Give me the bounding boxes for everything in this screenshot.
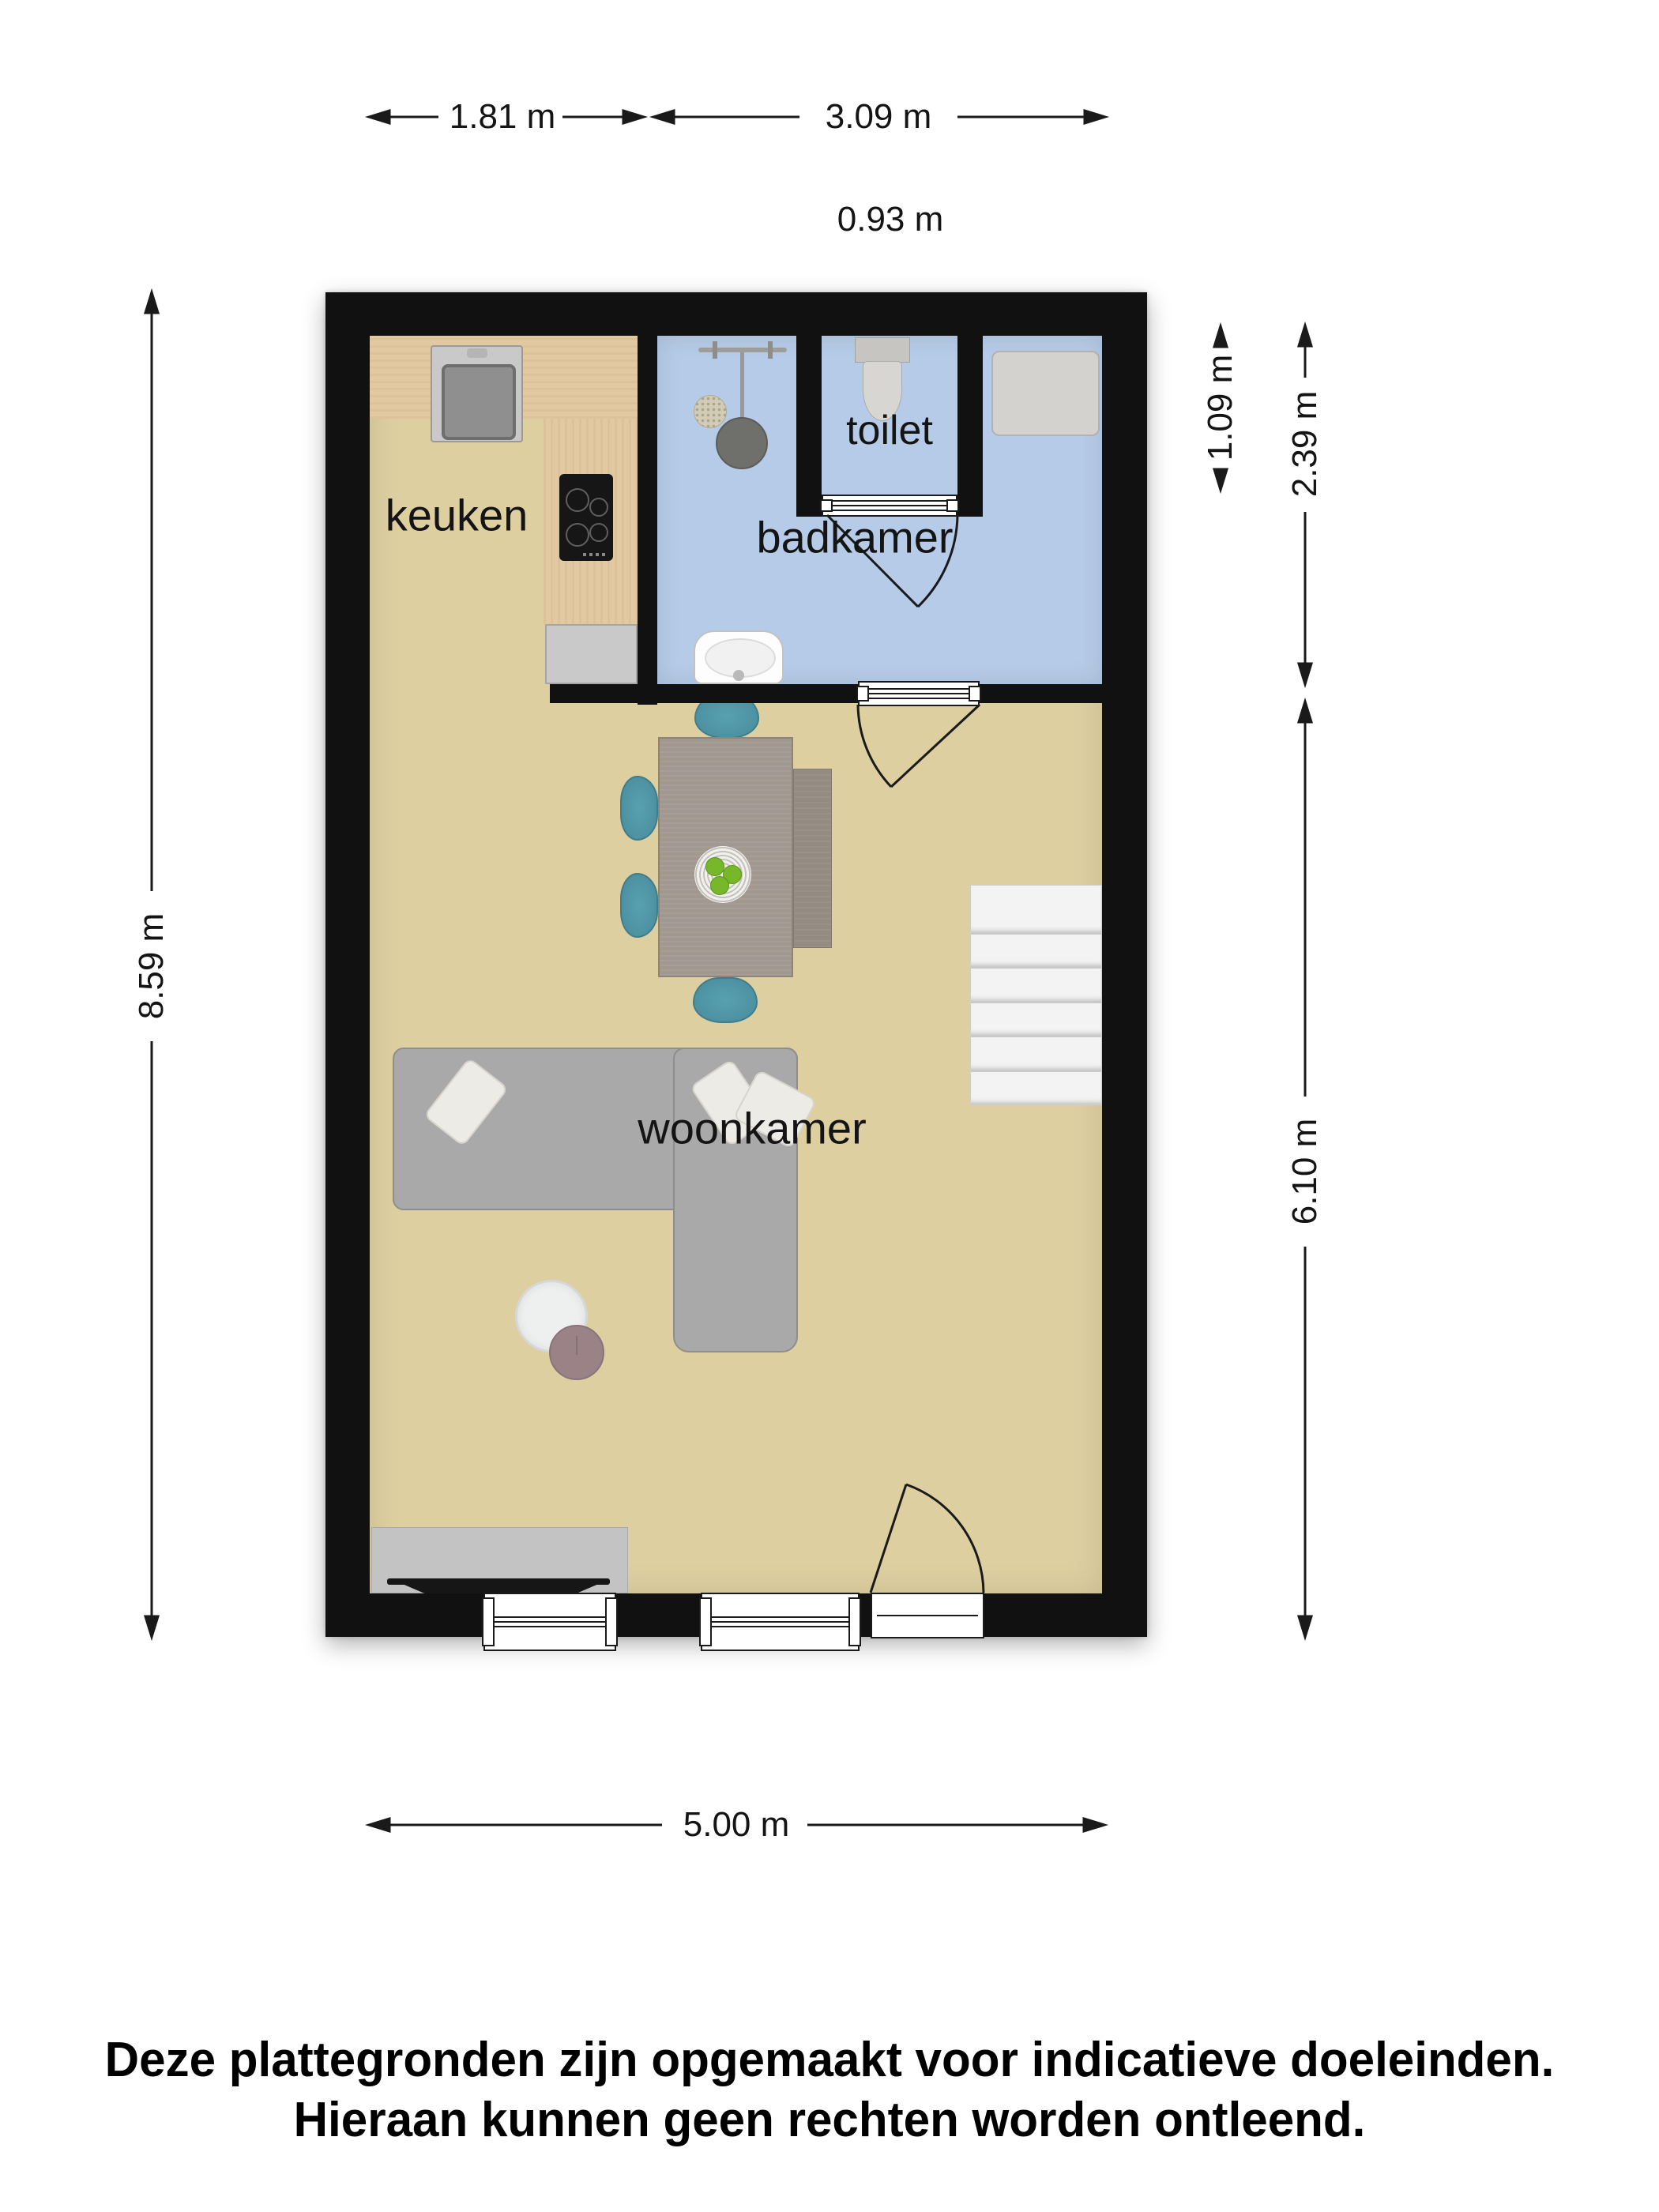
staircase (970, 885, 1102, 1105)
dim-kitchen-width: 1.81 m (450, 97, 556, 137)
stair-tread (971, 1037, 1101, 1071)
disclaimer: Deze plattegronden zijn opgemaakt voor i… (0, 2030, 1659, 2150)
bathroom-door-threshold (858, 681, 980, 706)
dining-chair-left-1 (620, 776, 658, 841)
room-label-kitchen: keuken (386, 490, 529, 541)
dining-chair-bottom (693, 977, 758, 1023)
dim-toilet-depth: 1.09 m (1201, 355, 1240, 461)
dim-bathroom-depth: 2.39 m (1285, 391, 1325, 498)
arrow-left-icon (369, 111, 389, 123)
stair-tread (971, 886, 1101, 935)
wall-toilet-right (957, 336, 983, 517)
door-jamb (856, 686, 869, 702)
window-jamb (605, 1597, 618, 1646)
stair-tread (971, 1003, 1101, 1037)
burner (566, 488, 589, 512)
dining-bench (793, 769, 832, 948)
disclaimer-line-2: Hieraan kunnen geen rechten worden ontle… (25, 2090, 1635, 2150)
sink-basin (442, 364, 516, 440)
dim-total-depth: 8.59 m (132, 913, 171, 1020)
arrow-down-icon (1299, 1616, 1311, 1637)
dim-total-width: 5.00 m (683, 1805, 790, 1845)
door-jamb (820, 499, 833, 512)
threshold-line (864, 693, 973, 694)
cooktop (559, 474, 613, 561)
apple (705, 857, 724, 876)
arrow-left-icon (653, 111, 674, 123)
side-table-round (549, 1325, 604, 1380)
burner (589, 498, 608, 517)
threshold-line (828, 505, 951, 506)
arrow-down-icon (1214, 469, 1227, 490)
sink-tap (733, 670, 744, 681)
wall-kitchen-bathroom (638, 336, 657, 705)
stair-tread (971, 969, 1101, 1003)
dim-living-depth: 6.10 m (1285, 1119, 1325, 1225)
arrow-up-icon (1214, 326, 1227, 347)
dim-bathroom-width: 3.09 m (826, 97, 932, 137)
arrow-up-icon (1299, 325, 1311, 346)
window-glazing-line (490, 1621, 610, 1623)
shower-valve (768, 341, 773, 359)
washing-machine (991, 351, 1100, 436)
dining-chair-left-2 (620, 873, 658, 938)
window-jamb (482, 1597, 495, 1646)
floorplan-page: keuken badkamer toilet woonkamer 1.81 m … (0, 0, 1659, 2212)
fruit-bowl (694, 846, 751, 903)
arrow-left-icon (369, 1819, 389, 1831)
window-glazing-line (707, 1621, 853, 1623)
dining-table (658, 737, 793, 977)
burner (589, 523, 608, 542)
sink-faucet (467, 348, 487, 358)
window-jamb (699, 1597, 712, 1646)
arrow-up-icon (145, 292, 158, 313)
apple (710, 876, 729, 895)
cooktop-controls (583, 553, 607, 556)
kitchen-appliance (545, 624, 638, 684)
shower-valve (713, 341, 717, 359)
bathroom-sink (694, 630, 784, 684)
arrow-down-icon (145, 1616, 158, 1637)
arrow-right-icon (1085, 111, 1105, 123)
dim-toilet-width: 0.93 m (837, 200, 944, 239)
arrow-right-icon (1084, 1819, 1104, 1831)
window-left (483, 1593, 616, 1651)
wall-bathroom-living-left (550, 684, 858, 703)
window-center (701, 1593, 860, 1651)
window-jamb (848, 1597, 861, 1646)
door-jamb (969, 686, 981, 702)
room-label-living: woonkamer (638, 1103, 866, 1154)
door-line (877, 1615, 978, 1616)
room-label-bathroom: badkamer (756, 512, 953, 563)
burner (566, 523, 589, 547)
arrow-down-icon (1299, 664, 1311, 684)
toilet-cistern (855, 337, 910, 363)
stair-tread (971, 935, 1101, 969)
wall-bathroom-living-right (980, 684, 1102, 703)
shower-head (716, 417, 768, 469)
kitchen-sink (431, 345, 523, 442)
wall-toilet-left (796, 336, 822, 517)
door-jamb (946, 499, 959, 512)
disclaimer-line-1: Deze plattegronden zijn opgemaakt voor i… (25, 2030, 1635, 2090)
room-label-toilet: toilet (846, 407, 933, 454)
arrow-right-icon (623, 111, 644, 123)
stair-tread (971, 1072, 1101, 1104)
arrow-up-icon (1299, 702, 1311, 722)
front-door-opening (871, 1593, 984, 1638)
shower-drain (694, 395, 727, 428)
side-table-mark (576, 1336, 577, 1355)
